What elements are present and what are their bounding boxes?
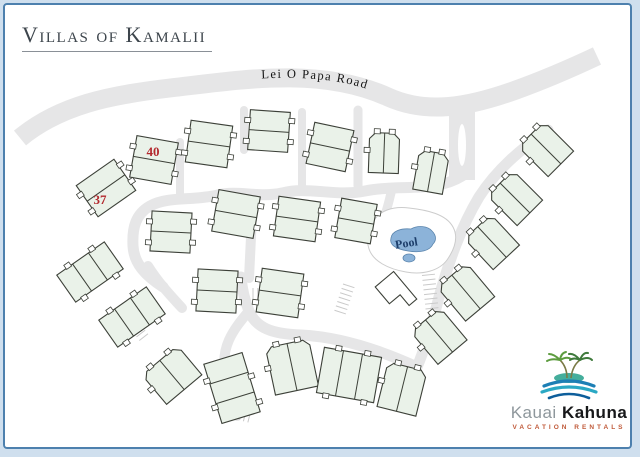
kauai-kahuna-logo-icon [530,348,608,404]
building-1 [125,135,184,185]
logo-words: Kauai Kahuna [498,404,640,422]
unit-number-40: 40 [147,144,160,159]
building-7 [408,145,450,194]
building-16 [251,268,309,319]
building-15 [191,269,243,314]
palm-fronds-right [569,353,592,360]
building-10 [268,196,325,243]
kauai-kahuna-logo: Kauai Kahuna Vacation Rentals [498,348,640,431]
spa [403,254,415,262]
wave-middle [542,387,596,392]
logo-tagline: Vacation Rentals [498,424,640,431]
entrance-median-island [458,124,466,166]
building-8 [145,211,197,254]
wave-top [544,381,594,386]
building-5 [301,121,359,172]
logo-word-kahuna: Kahuna [562,403,627,422]
building-12 [54,239,125,306]
building-13 [96,284,167,351]
building-3 [180,120,237,169]
unit-number-37: 37 [94,192,108,207]
building-17 [199,351,265,425]
building-14 [136,343,202,408]
logo-word-kauai: Kauai [511,403,557,422]
clubhouse [375,271,417,314]
building-25 [405,305,468,368]
site-map-page: Lei O Papa RoadPool4037 Villas of Kamali… [0,0,640,457]
wave-bottom [549,394,589,398]
map-title: Villas of Kamalii [22,22,212,52]
building-18 [260,335,319,396]
building-6 [363,128,400,173]
building-4 [243,109,296,152]
parking-stalls-5 [334,284,354,314]
palm-fronds-left [547,352,571,361]
